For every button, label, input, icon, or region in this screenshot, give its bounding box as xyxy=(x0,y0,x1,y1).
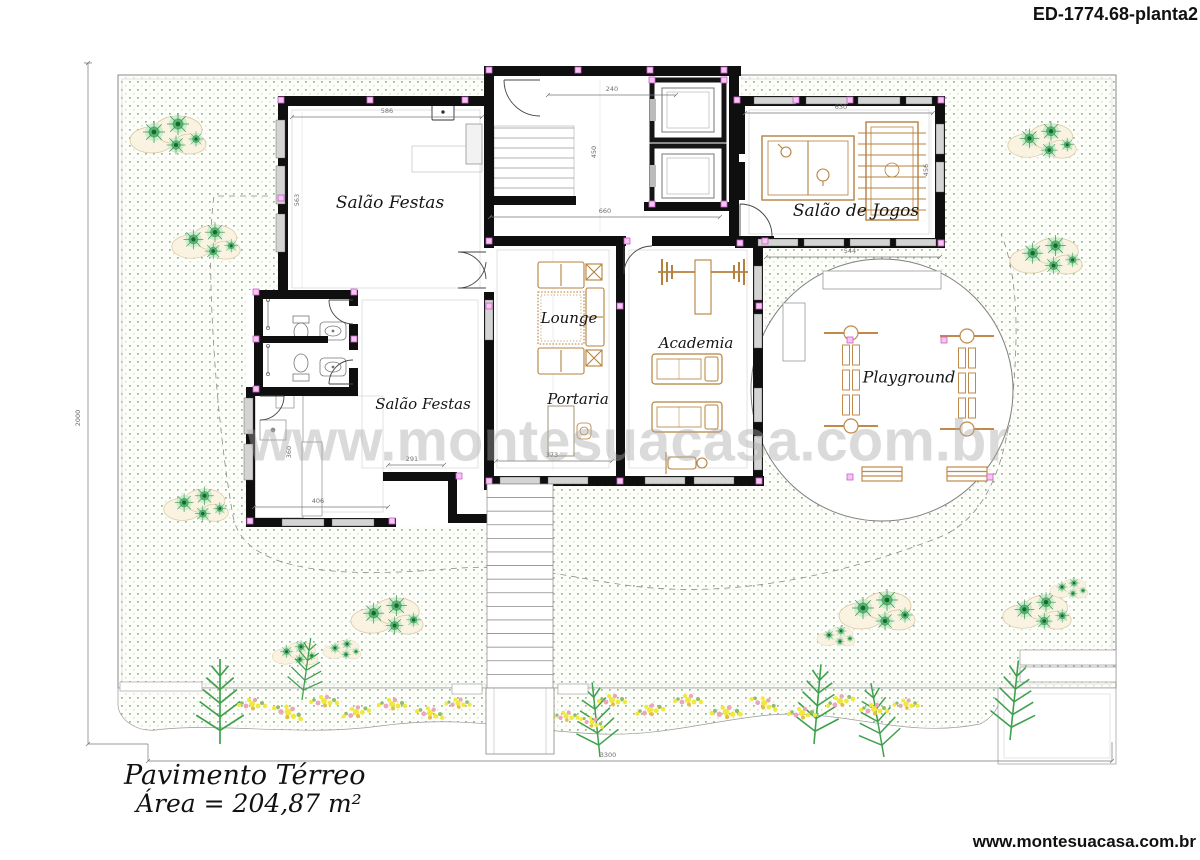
dimension-label-hall-depth: 450 xyxy=(590,146,598,158)
dimension-label-hall-total: 660 xyxy=(599,207,611,215)
dimension-label-games-room-depth: 456 xyxy=(922,164,930,176)
elevator-1 xyxy=(650,80,724,140)
treadmill xyxy=(652,402,722,432)
dimension-label-party-room-bottom-width: 291 xyxy=(406,455,418,463)
dimension-label-hall-width: 240 xyxy=(606,85,618,93)
dimension-label-kitchen-depth: 360 xyxy=(285,446,293,458)
pool-table xyxy=(762,136,854,200)
park-bench xyxy=(862,467,902,481)
park-bench xyxy=(947,467,987,481)
toilet xyxy=(293,354,309,381)
wall-cabinet xyxy=(432,104,454,120)
sink xyxy=(320,358,346,376)
dimension-label-party-room-depth: 563 xyxy=(293,194,301,206)
planter-box xyxy=(783,303,805,361)
foosball-table xyxy=(858,122,926,220)
dimension-label-kitchen-width: 406 xyxy=(312,497,324,505)
treadmill xyxy=(652,354,722,384)
elevator-2 xyxy=(650,146,724,206)
planter-box xyxy=(823,271,941,289)
dimension-label-portaria-width: 373 xyxy=(546,451,558,459)
floor-plan-canvas: 586 240 450 660 630 456 563 544 373 291 … xyxy=(0,0,1200,860)
interior-stair xyxy=(494,126,574,200)
dimension-label-games-room-width: 630 xyxy=(835,103,847,111)
floor-plan-page: 586 240 450 660 630 456 563 544 373 291 … xyxy=(0,0,1200,860)
dimension-label-playground-width: 544 xyxy=(844,247,856,255)
dimension-label-site-depth: 2000 xyxy=(74,410,82,427)
exterior-stairs xyxy=(487,484,553,688)
dimension-label-party-room-width: 586 xyxy=(381,107,393,115)
dimension-label-site-width: 3300 xyxy=(600,751,617,759)
paver-bottom-left xyxy=(120,682,202,691)
